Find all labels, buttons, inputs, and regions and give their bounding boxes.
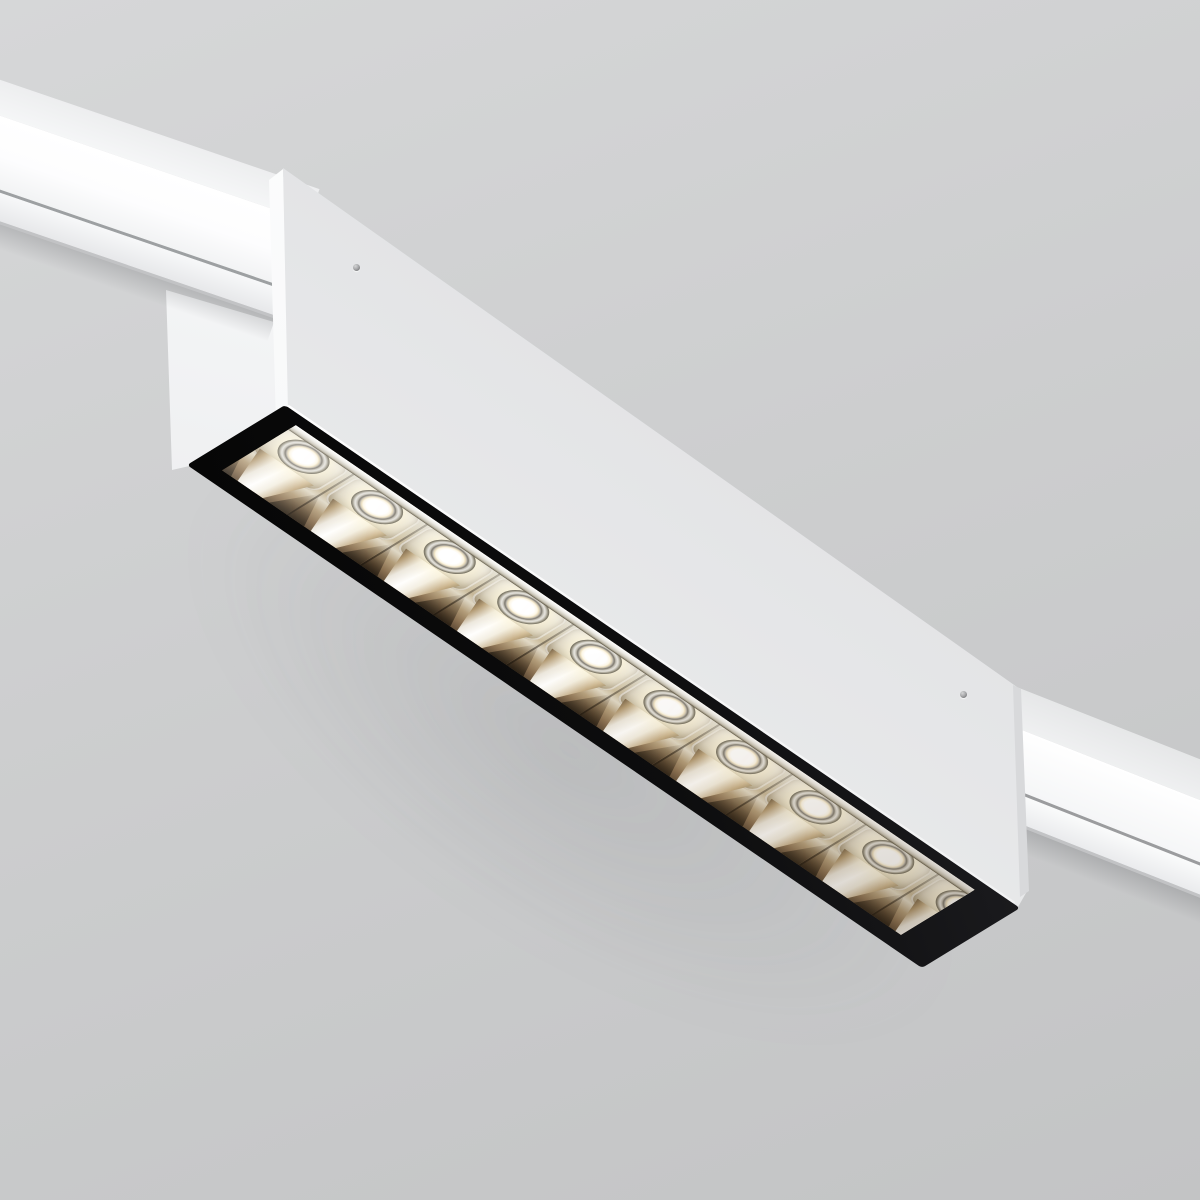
mounting-screw	[353, 264, 360, 271]
mounting-screw	[960, 691, 967, 698]
product-render-scene	[0, 0, 1200, 1200]
